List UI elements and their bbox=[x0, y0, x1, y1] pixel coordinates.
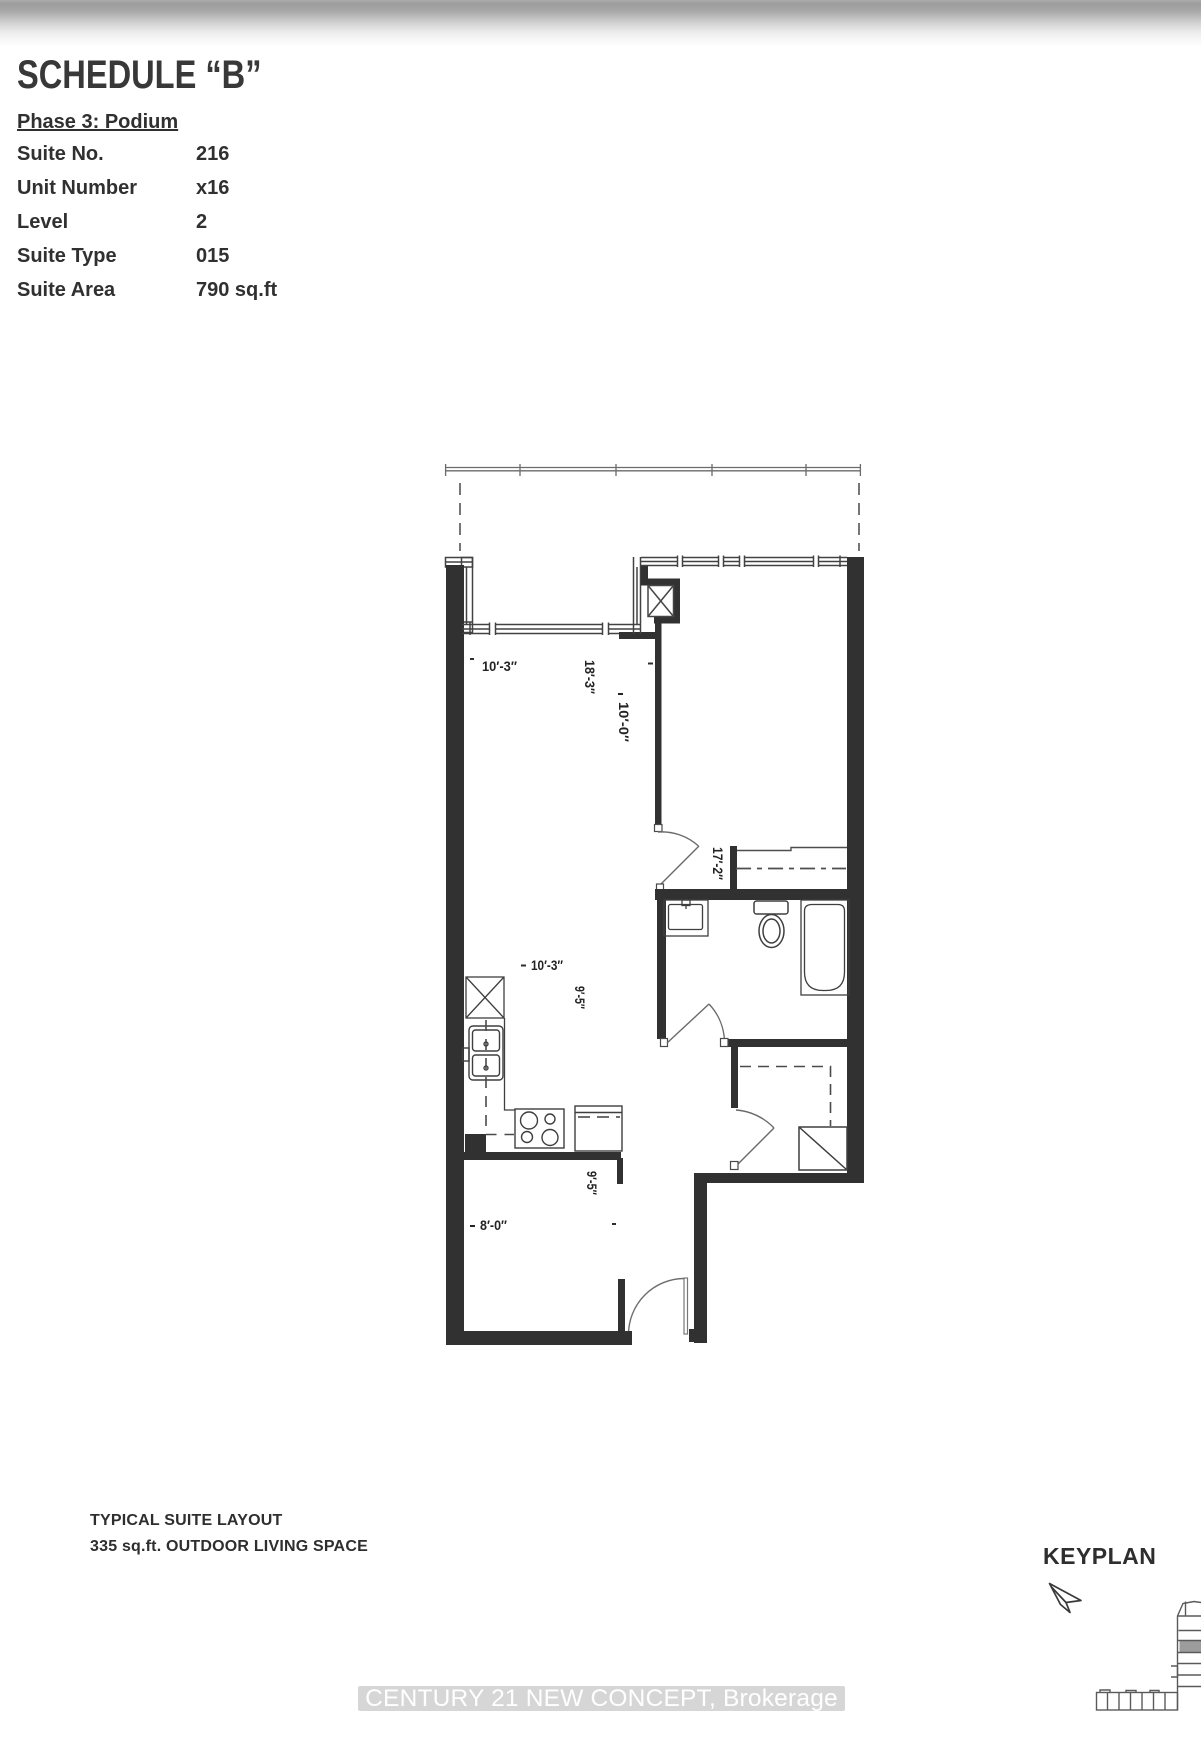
svg-text:17′-2″: 17′-2″ bbox=[710, 847, 725, 880]
svg-text:10′-0″: 10′-0″ bbox=[616, 702, 631, 743]
svg-text:18′-3″: 18′-3″ bbox=[582, 660, 597, 694]
svg-text:10′-3″: 10′-3″ bbox=[531, 958, 563, 973]
svg-text:9′-5″: 9′-5″ bbox=[584, 1171, 599, 1195]
svg-text:10′-3″: 10′-3″ bbox=[482, 659, 517, 674]
svg-text:9′-5″: 9′-5″ bbox=[572, 986, 587, 1009]
svg-text:8′-0″: 8′-0″ bbox=[480, 1218, 507, 1233]
